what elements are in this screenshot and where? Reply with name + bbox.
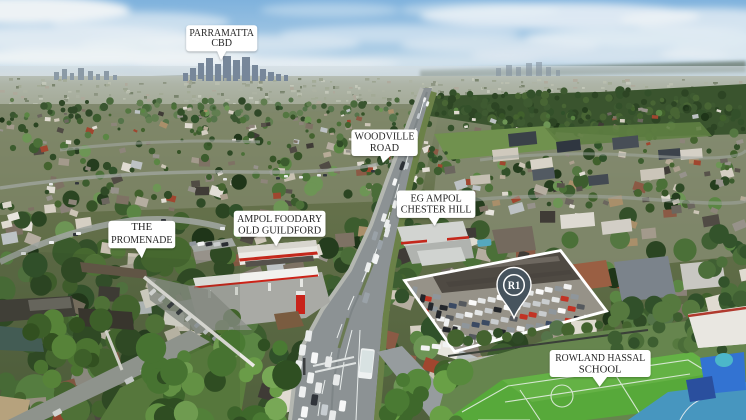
svg-text:ROWLAND HASSAL: ROWLAND HASSAL [555,352,645,364]
svg-text:R1: R1 [508,278,521,292]
svg-text:OLD GUILDFORD: OLD GUILDFORD [238,225,321,237]
svg-text:SCHOOL: SCHOOL [579,364,622,376]
svg-text:PROMENADE: PROMENADE [111,234,173,246]
svg-text:AMPOL FOODARY: AMPOL FOODARY [237,213,322,225]
svg-text:THE: THE [131,221,152,233]
svg-text:CBD: CBD [211,37,232,49]
svg-text:CHESTER HILL: CHESTER HILL [401,203,472,215]
svg-text:ROAD: ROAD [370,142,399,154]
svg-text:WOODVILLE: WOODVILLE [355,130,415,142]
